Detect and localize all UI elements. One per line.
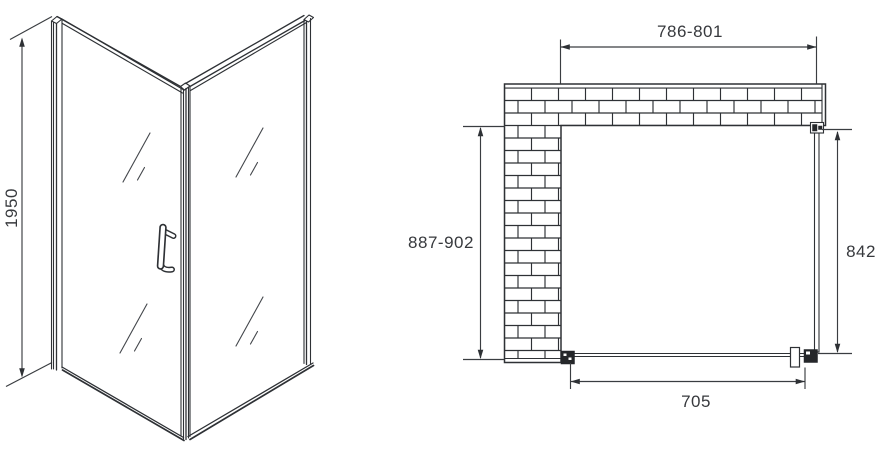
corner-post (181, 83, 191, 440)
brick-fill (505, 88, 823, 359)
door-hinge (561, 351, 575, 364)
arrowhead-down-icon (835, 344, 841, 353)
door-handle-3d (161, 228, 174, 270)
opening-width-dimension: 786-801 (561, 22, 817, 84)
door-bottom-rail (62, 367, 184, 441)
wall-bracket (811, 123, 824, 134)
side-panel-bottom-rail (188, 363, 314, 440)
arrowhead-right-icon (807, 44, 816, 50)
glass-reflection-mark (120, 304, 147, 353)
side-panel-dimension: 842 (818, 130, 876, 354)
corner-connector (804, 350, 818, 363)
depth-dimension: 887-902 (408, 127, 504, 360)
top-frame-bar-left (57, 17, 184, 94)
height-dimension: 1950 (2, 17, 52, 387)
opening-width-label: 786-801 (657, 22, 723, 41)
plan-view: 786-801 887-902 842 705 (408, 22, 876, 411)
door-handle-plan (791, 348, 800, 368)
isometric-view: 1950 (2, 15, 314, 441)
arrowhead-up-icon (835, 131, 841, 140)
depth-dimension-label: 887-902 (408, 233, 474, 252)
top-frame-bar-right (186, 16, 308, 91)
glass-reflection-marks (120, 128, 263, 353)
right-frame-post (304, 15, 314, 365)
arrowhead-right-icon (796, 379, 805, 385)
post-top-cap (304, 15, 314, 22)
arrowhead-left-icon (561, 44, 570, 50)
door-width-label: 705 (681, 392, 711, 411)
side-panel-dimension-label: 842 (846, 242, 876, 261)
arrowhead-down-icon (19, 368, 25, 377)
brick-wall (505, 84, 826, 363)
glass-reflection-mark (236, 128, 263, 177)
shower-enclosure-technical-drawing: 1950 (0, 0, 883, 450)
dimension-extension-line (10, 17, 52, 40)
drawing-svg: 1950 (0, 0, 883, 450)
side-panel-plan (811, 123, 824, 353)
dimension-extension-line (6, 363, 52, 387)
glass-reflection-mark (236, 297, 263, 346)
door-width-dimension: 705 (571, 363, 806, 411)
side-panel-glass (815, 133, 820, 352)
glass-reflection-mark (123, 133, 150, 182)
arrowhead-down-icon (478, 350, 484, 359)
height-dimension-label: 1950 (2, 188, 21, 228)
shower-door-plan (561, 348, 818, 368)
arrowhead-up-icon (478, 127, 484, 136)
arrowhead-left-icon (571, 379, 580, 385)
left-frame-post (52, 17, 63, 371)
arrowhead-up-icon (19, 38, 25, 47)
